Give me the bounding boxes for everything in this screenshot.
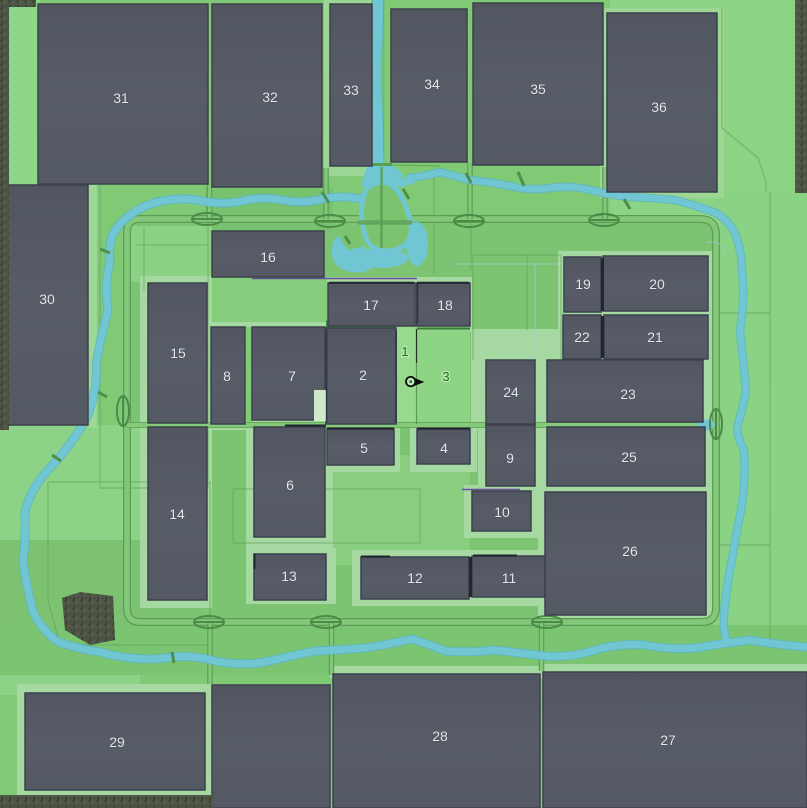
svg-text:15: 15 [170,345,186,361]
svg-text:1: 1 [401,344,408,359]
svg-text:18: 18 [437,297,453,313]
svg-text:27: 27 [660,732,676,748]
svg-text:36: 36 [651,99,667,115]
svg-text:33: 33 [343,82,359,98]
svg-text:10: 10 [494,504,510,520]
svg-text:28: 28 [432,728,448,744]
svg-text:24: 24 [503,384,519,400]
svg-text:19: 19 [575,276,591,292]
svg-text:21: 21 [647,329,663,345]
svg-text:12: 12 [407,570,423,586]
svg-text:29: 29 [109,734,125,750]
svg-text:6: 6 [286,477,294,493]
svg-text:22: 22 [574,329,590,345]
svg-text:31: 31 [113,90,129,106]
svg-text:16: 16 [260,249,276,265]
svg-text:14: 14 [169,506,185,522]
svg-text:35: 35 [530,81,546,97]
svg-text:2: 2 [359,367,367,383]
svg-text:8: 8 [223,368,231,384]
svg-text:23: 23 [620,386,636,402]
svg-text:32: 32 [262,89,278,105]
svg-text:7: 7 [288,368,296,384]
svg-text:11: 11 [502,570,517,586]
svg-text:4: 4 [440,440,448,456]
svg-text:20: 20 [649,276,665,292]
svg-text:34: 34 [424,76,440,92]
svg-text:3: 3 [442,369,449,384]
svg-text:17: 17 [363,297,379,313]
svg-text:9: 9 [506,450,514,466]
svg-text:5: 5 [360,440,368,456]
svg-text:30: 30 [39,291,55,307]
svg-text:13: 13 [281,568,297,584]
svg-text:25: 25 [621,449,637,465]
svg-text:26: 26 [622,543,638,559]
